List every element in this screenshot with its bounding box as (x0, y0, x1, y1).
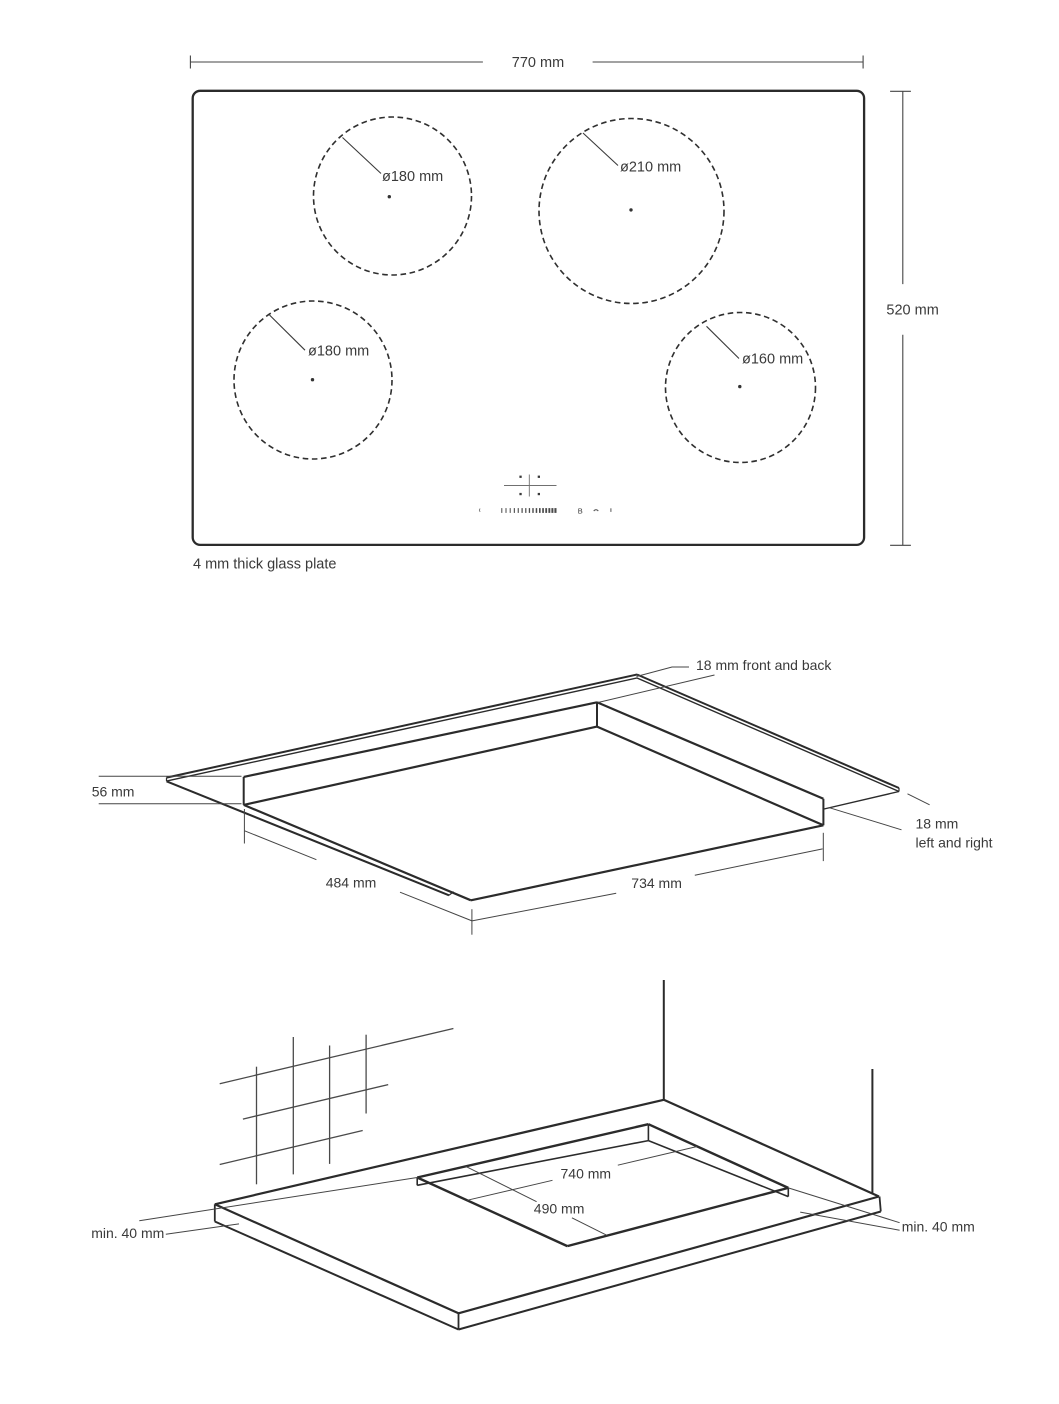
svg-text:490 mm: 490 mm (534, 1201, 585, 1217)
svg-text:734 mm: 734 mm (631, 875, 682, 891)
svg-text:ø180 mm: ø180 mm (308, 344, 369, 360)
svg-text:ø160 mm: ø160 mm (742, 352, 803, 368)
svg-text:min. 40 mm: min. 40 mm (91, 1225, 164, 1241)
svg-text:18 mm: 18 mm (916, 816, 959, 832)
svg-text:ø210 mm: ø210 mm (620, 160, 681, 176)
svg-text:520 mm: 520 mm (886, 303, 938, 319)
svg-text:56 mm: 56 mm (92, 784, 135, 800)
svg-text:left and right: left and right (916, 835, 993, 851)
svg-text:min. 40 mm: min. 40 mm (902, 1219, 975, 1235)
svg-text:484 mm: 484 mm (326, 874, 377, 890)
svg-text:4 mm thick glass plate: 4 mm thick glass plate (193, 557, 336, 573)
svg-text:B: B (578, 506, 583, 515)
svg-text:770 mm: 770 mm (512, 55, 564, 71)
svg-text:740 mm: 740 mm (561, 1166, 612, 1182)
svg-text:18 mm front and back: 18 mm front and back (696, 657, 832, 673)
svg-text:ø180 mm: ø180 mm (382, 169, 443, 185)
